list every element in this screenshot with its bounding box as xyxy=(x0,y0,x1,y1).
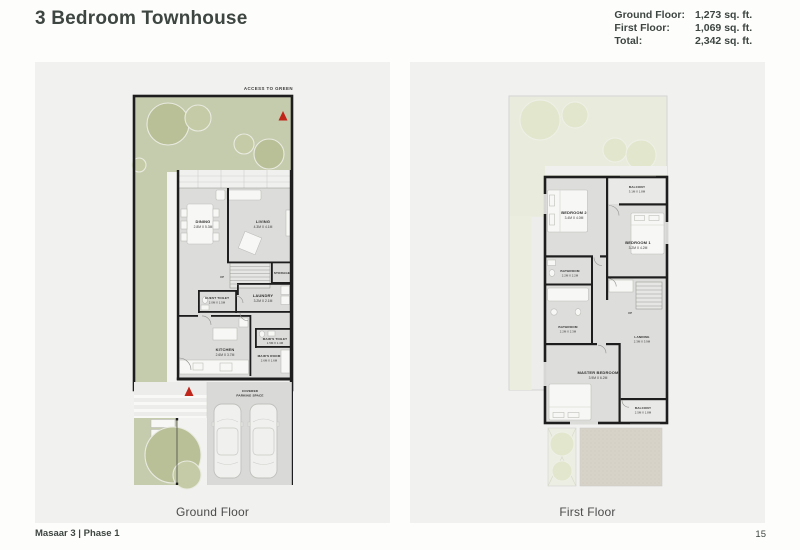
access-to-green-label: ACCESS TO GREEN xyxy=(244,86,293,91)
living-dims: 4.3M X 4.1M xyxy=(254,225,273,229)
living-label: LIVING xyxy=(256,219,270,224)
stat-value: 2,342 sq. ft. xyxy=(695,35,767,48)
balcony-bottom-label: BALCONY xyxy=(635,406,652,410)
car-icon xyxy=(212,404,243,478)
guest-toilet-dims: 2.0M X 1.5M xyxy=(209,301,226,305)
master-bedroom-dims: 3.9M X 6.2M xyxy=(589,376,608,380)
tree-icon xyxy=(552,461,572,481)
balcony-bottom-dims: 2.5M X 1.8M xyxy=(635,411,652,415)
laundry-label: LAUNDRY xyxy=(253,293,274,298)
landing-dims: 2.3M X 3.9M xyxy=(634,340,651,344)
stat-value: 1,273 sq. ft. xyxy=(695,9,767,22)
tree-icon xyxy=(603,138,627,162)
ground-floor-panel: ACCESS TO GREEN xyxy=(35,62,390,523)
parking-label: COVERED xyxy=(242,389,259,393)
bedroom2-dims: 3.4M X 4.0M xyxy=(565,216,584,220)
bathroom-lower-dims: 2.2M X 2.3M xyxy=(560,330,577,334)
balcony-top-dims: 3.1M X 1.8M xyxy=(629,190,646,194)
tree-icon xyxy=(234,134,254,154)
planter-icon xyxy=(548,428,576,486)
maids-room-dims: 2.6M X 1.6M xyxy=(261,359,278,363)
dining-label: DINING xyxy=(196,219,211,224)
kitchen-label: KITCHEN xyxy=(216,347,235,352)
dining-table xyxy=(181,204,219,244)
page-number: 15 xyxy=(755,529,766,540)
tree-icon xyxy=(562,102,588,128)
tree-icon xyxy=(254,139,284,169)
up-label: UP xyxy=(628,311,632,315)
tree-icon xyxy=(520,100,560,140)
guest-toilet-label: GUEST TOILET xyxy=(205,296,229,300)
ground-floor-caption: Ground Floor xyxy=(35,505,390,519)
side-garden xyxy=(134,418,207,489)
ghost-terrace xyxy=(548,428,662,486)
bathroom-upper-label: BATHROOM xyxy=(560,269,579,273)
master-bedroom-label: MASTER BEDROOM xyxy=(578,370,620,375)
first-floor-caption: First Floor xyxy=(410,505,765,519)
maids-bed xyxy=(281,350,290,373)
stairs-icon xyxy=(636,282,662,309)
parking-label: PARKING SPACE xyxy=(236,394,263,398)
tree-icon xyxy=(626,140,656,170)
first-floor-plan: UP xyxy=(410,62,765,523)
bedroom1-label: BEDROOM 1 xyxy=(625,240,651,245)
maids-toilet-dims: 1.5M X 1.4M xyxy=(267,341,284,345)
tree-icon xyxy=(550,432,574,456)
bed-icon xyxy=(549,384,591,420)
landing-label: LANDING xyxy=(634,335,650,339)
bedroom2-label: BEDROOM 2 xyxy=(561,210,587,215)
maids-room-label: MAID'S ROOM xyxy=(258,354,281,358)
stat-label: First Floor: xyxy=(614,22,685,35)
laundry-dims: 3.2M X 2.1M xyxy=(254,299,273,303)
tree-icon xyxy=(185,105,211,131)
ground-floor-plan: ACCESS TO GREEN xyxy=(35,62,390,523)
tree-icon xyxy=(147,103,189,145)
up-label: UP xyxy=(220,275,224,279)
page-title: 3 Bedroom Townhouse xyxy=(35,8,247,30)
dining-dims: 2.8M X 5.3M xyxy=(194,225,213,229)
kitchen-dims: 2.6M X 3.7M xyxy=(216,353,235,357)
bathroom-lower-label: BATHROOM xyxy=(558,325,577,329)
brochure-page: 3 Bedroom Townhouse Ground Floor: 1,273 … xyxy=(0,0,800,550)
walkway xyxy=(134,382,207,419)
car-icon xyxy=(248,404,279,478)
first-floor-panel: UP xyxy=(410,62,765,523)
closet xyxy=(609,280,633,292)
stat-label: Total: xyxy=(614,35,685,48)
bedroom1-dims: 3.2M X 4.2M xyxy=(629,246,648,250)
storage-label: STORAGE xyxy=(274,271,290,275)
bathroom-upper-dims: 2.2M X 2.2M xyxy=(562,274,579,278)
stat-label: Ground Floor: xyxy=(614,9,685,22)
area-stats: Ground Floor: 1,273 sq. ft. First Floor:… xyxy=(614,9,767,48)
stat-value: 1,069 sq. ft. xyxy=(695,22,767,35)
balcony-top-label: BALCONY xyxy=(629,185,646,189)
project-name: Masaar 3 | Phase 1 xyxy=(35,528,120,539)
